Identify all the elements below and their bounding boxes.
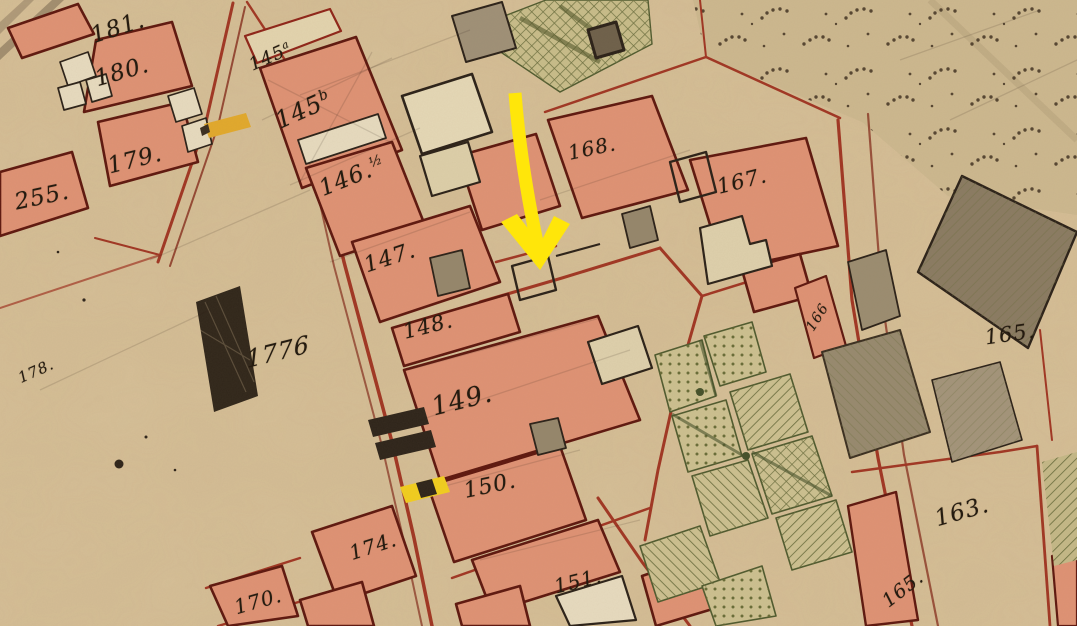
map-artwork xyxy=(0,0,1077,626)
paper-grain xyxy=(0,0,1077,626)
map-viewport[interactable]: 181. 180. 179. 255. 178. 145a 145b 146.½… xyxy=(0,0,1077,626)
